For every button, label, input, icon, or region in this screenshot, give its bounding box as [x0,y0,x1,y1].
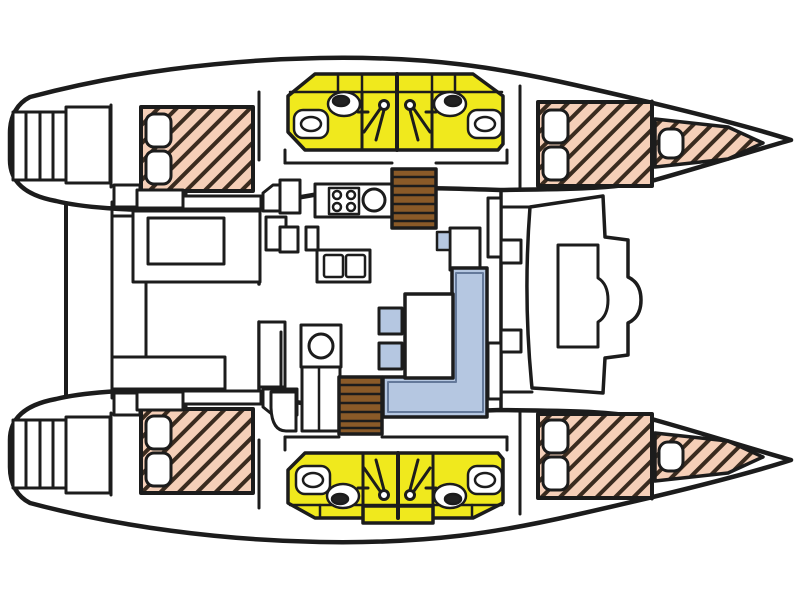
catamaran-deck-plan [0,0,800,600]
front-wall-cabinets [488,198,521,399]
corner-seat [271,392,296,431]
plan-root [10,58,791,542]
swim-steps-port [13,107,110,183]
galley-sink-icon [363,189,385,211]
swim-steps-starboard [13,417,110,493]
dining-table [405,294,453,378]
galley-cabinet-a [280,180,300,213]
toilet-icon-port-aft [328,92,360,116]
salon-seating [379,268,487,417]
chart-table-area [437,228,480,270]
pillow-forepeak-starboard [659,442,683,471]
stool-2 [379,343,402,369]
sink-icon-starboard-aft [296,466,330,494]
heads-port [288,74,503,150]
companionway-stairs-starboard [339,377,382,434]
wet-bar-sink-icon [309,334,333,358]
companionway-stairs-port [392,169,436,228]
heads-starboard [288,453,503,523]
chart-table [450,228,480,270]
boat-plan-page [0,0,800,600]
stove-icon [329,188,359,214]
sink-icon-port-aft [294,110,328,138]
galley-cabinet-c [306,227,318,250]
sink-icon-starboard-forward [468,466,502,494]
cockpit-table [148,218,224,264]
sink-icon-port-forward [468,110,502,138]
wet-bar-lower [302,367,340,431]
galley-cabinet-b [280,227,298,252]
forward-cockpit [501,196,641,393]
toilet-icon-starboard-aft [327,484,359,508]
toilet-icon-port-forward [434,92,466,116]
wet-bar [271,325,341,431]
aft-cockpit [112,211,286,389]
toilet-icon-starboard-forward [434,484,466,508]
stool-1 [379,308,402,334]
cockpit-aft-bench [112,357,225,389]
chart-table-seat [437,232,450,250]
galley [280,180,393,282]
pillow-forepeak-port [659,129,683,158]
forward-seat [527,196,641,393]
